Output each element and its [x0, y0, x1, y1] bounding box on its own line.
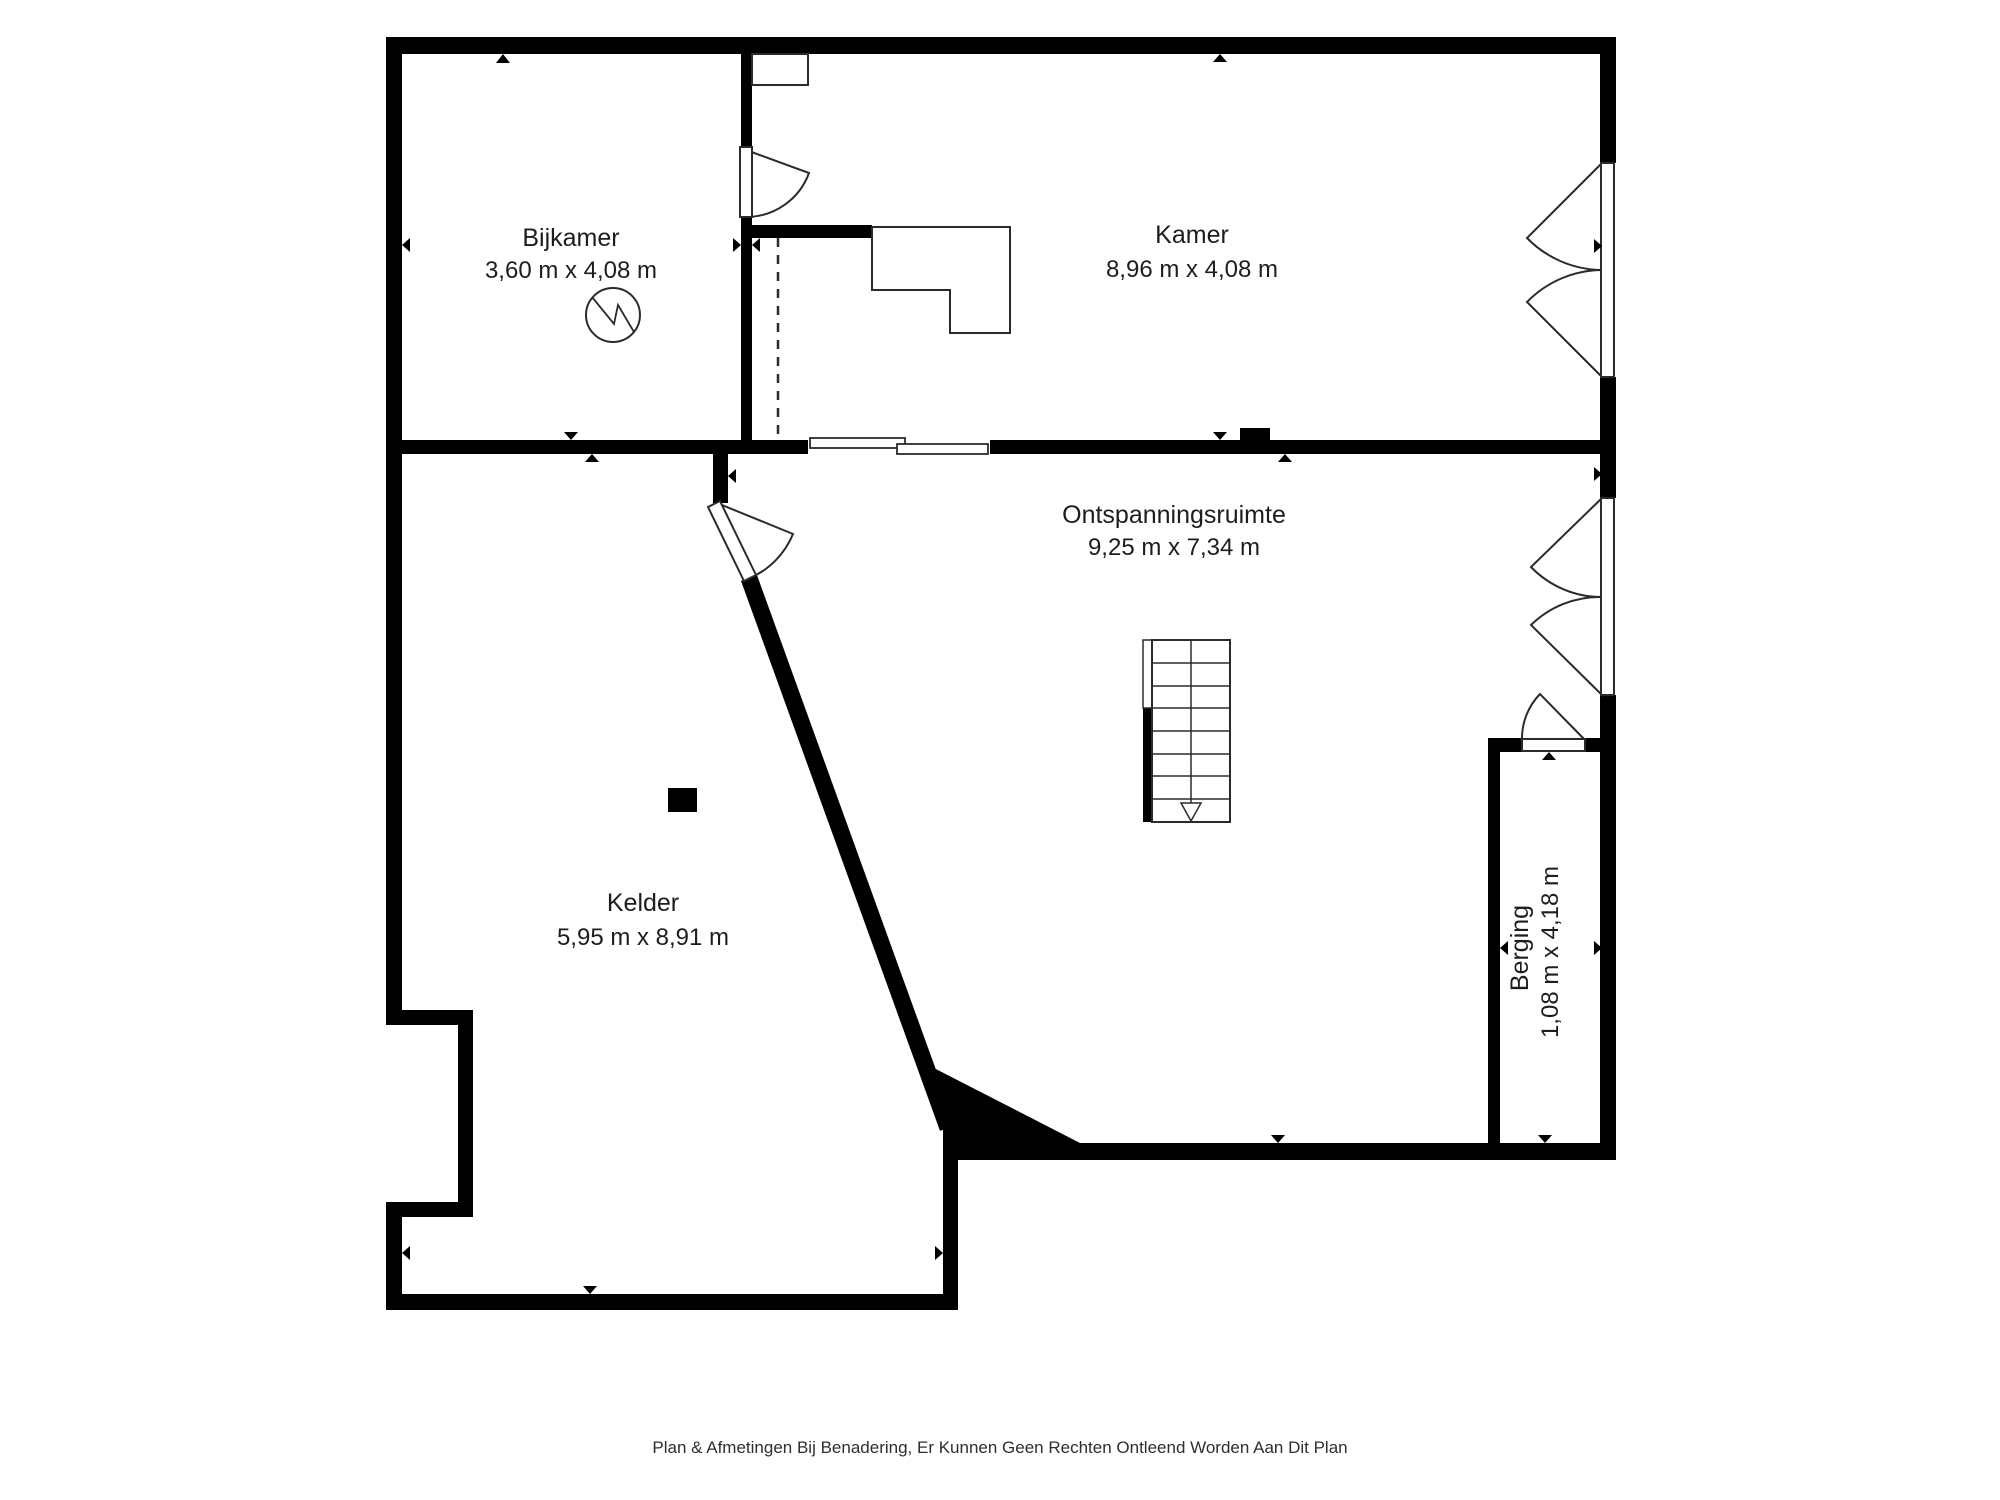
- tick-kamer-bottom: [1213, 432, 1227, 440]
- door-swing-ontspanning-upper: [1531, 498, 1602, 597]
- boiler-symbol-icon: [586, 288, 640, 342]
- room-dims-berging: 1,08 m x 4,18 m: [1537, 866, 1564, 1038]
- wall-middle-right: [990, 440, 1600, 454]
- door-swing-kamer-lower: [1527, 270, 1602, 377]
- wall-stairs-side: [1143, 708, 1152, 822]
- tick-ontspanning-top: [1278, 454, 1292, 462]
- stairs-rail-strip: [1143, 640, 1152, 708]
- door-swing-kamer-upper: [1527, 163, 1602, 270]
- tick-bijkamer-right: [733, 238, 741, 252]
- wall-divider-lower: [741, 217, 752, 440]
- sliding-door-panel-right: [897, 444, 988, 454]
- wall-top-exterior: [386, 37, 1616, 54]
- wall-divider-upper: [741, 54, 752, 147]
- door-jamb-kamer: [1601, 163, 1614, 377]
- floorplan-canvas: Bijkamer 3,60 m x 4,08 m Kamer 8,96 m x …: [0, 0, 2000, 1500]
- tick-ontspanning-bottom: [1271, 1135, 1285, 1143]
- stairs: [1143, 640, 1230, 822]
- door-swing-bijkamer: [746, 150, 809, 217]
- room-label-ontspanningsruimte: Ontspanningsruimte: [1062, 501, 1286, 529]
- room-label-bijkamer: Bijkamer: [522, 224, 619, 252]
- wall-kelder-right: [943, 1143, 958, 1310]
- sliding-door-panel-left: [810, 438, 905, 448]
- tick-berging-bottom: [1538, 1135, 1552, 1143]
- wall-notch-right: [458, 1010, 473, 1217]
- tick-kelder-top: [585, 454, 599, 462]
- door-swing-ontspanning-lower: [1531, 597, 1602, 695]
- room-label-kelder: Kelder: [607, 889, 679, 917]
- wall-right-exterior-b: [1600, 377, 1616, 498]
- wall-left-exterior-lower: [386, 1202, 402, 1310]
- door-jamb-berging: [1522, 739, 1585, 751]
- room-dims-kelder: 5,95 m x 8,91 m: [557, 924, 729, 951]
- wall-left-exterior-upper: [386, 37, 402, 1025]
- disclaimer-text: Plan & Afmetingen Bij Benadering, Er Kun…: [652, 1438, 1347, 1457]
- kelder-column-symbol: [668, 788, 697, 812]
- tick-kelder-left: [402, 1246, 410, 1260]
- fixture-counter-l-shape: [872, 227, 1010, 333]
- tick-kamer-left: [752, 238, 760, 252]
- tick-kelder-right: [935, 1246, 943, 1260]
- room-label-kamer: Kamer: [1155, 221, 1229, 249]
- door-leaf-bijkamer: [740, 147, 752, 217]
- wall-right-exterior-a: [1600, 37, 1616, 163]
- wall-middle-left: [402, 440, 808, 454]
- wall-right-exterior-c: [1600, 695, 1616, 1160]
- tick-berging-top: [1542, 752, 1556, 760]
- door-swing-berging: [1522, 694, 1585, 740]
- floorplan-page: Bijkamer 3,60 m x 4,08 m Kamer 8,96 m x …: [0, 0, 2000, 1500]
- wall-diagonal: [749, 578, 948, 1128]
- room-dims-kamer: 8,96 m x 4,08 m: [1106, 256, 1278, 283]
- wall-stub: [713, 454, 728, 503]
- tick-bijkamer-top: [496, 54, 510, 63]
- door-jamb-ontspanning: [1601, 498, 1614, 695]
- wall-berging-top-left: [1488, 738, 1522, 752]
- boiler-zigzag-icon: [592, 297, 634, 332]
- wall-hall: [752, 225, 872, 238]
- tick-kelder-bottom: [583, 1286, 597, 1294]
- tick-kamer-top: [1213, 54, 1227, 62]
- wall-berging-top-right: [1585, 738, 1600, 752]
- wall-diagonal-corner-fill: [928, 1065, 1080, 1160]
- wall-duct-block: [1240, 428, 1270, 454]
- wall-bottom-right-section: [1010, 1143, 1616, 1160]
- fixture-cabinet-top: [752, 54, 808, 85]
- room-dims-ontspanningsruimte: 9,25 m x 7,34 m: [1088, 534, 1260, 561]
- room-dims-bijkamer: 3,60 m x 4,08 m: [485, 257, 657, 284]
- wall-berging-left: [1488, 752, 1500, 1143]
- tick-bijkamer-bottom: [564, 432, 578, 440]
- tick-bijkamer-left: [402, 238, 410, 252]
- room-label-berging: Berging: [1506, 905, 1534, 991]
- wall-bottom-kelder: [386, 1294, 958, 1310]
- tick-ontspanning-left: [728, 469, 736, 483]
